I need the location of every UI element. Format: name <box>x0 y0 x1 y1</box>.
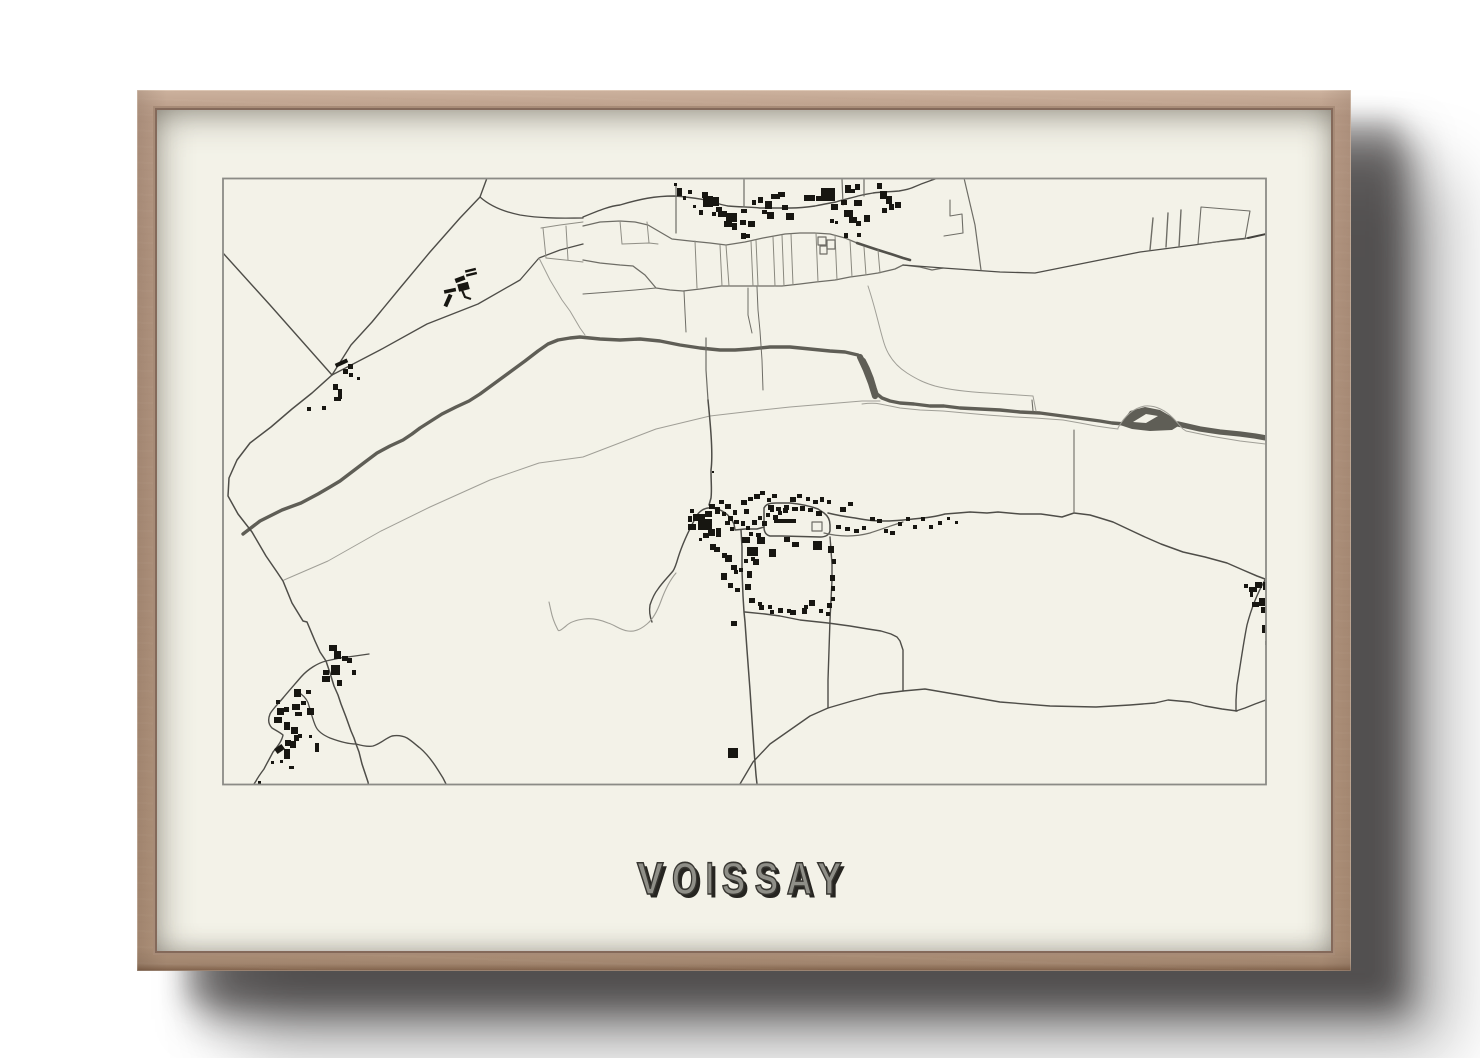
svg-text:S: S <box>722 853 749 904</box>
svg-text:I: I <box>706 853 716 904</box>
svg-text:S: S <box>755 853 782 904</box>
svg-text:Y: Y <box>817 853 845 904</box>
svg-text:O: O <box>672 853 701 904</box>
svg-text:V: V <box>637 853 667 904</box>
svg-text:A: A <box>787 853 816 904</box>
